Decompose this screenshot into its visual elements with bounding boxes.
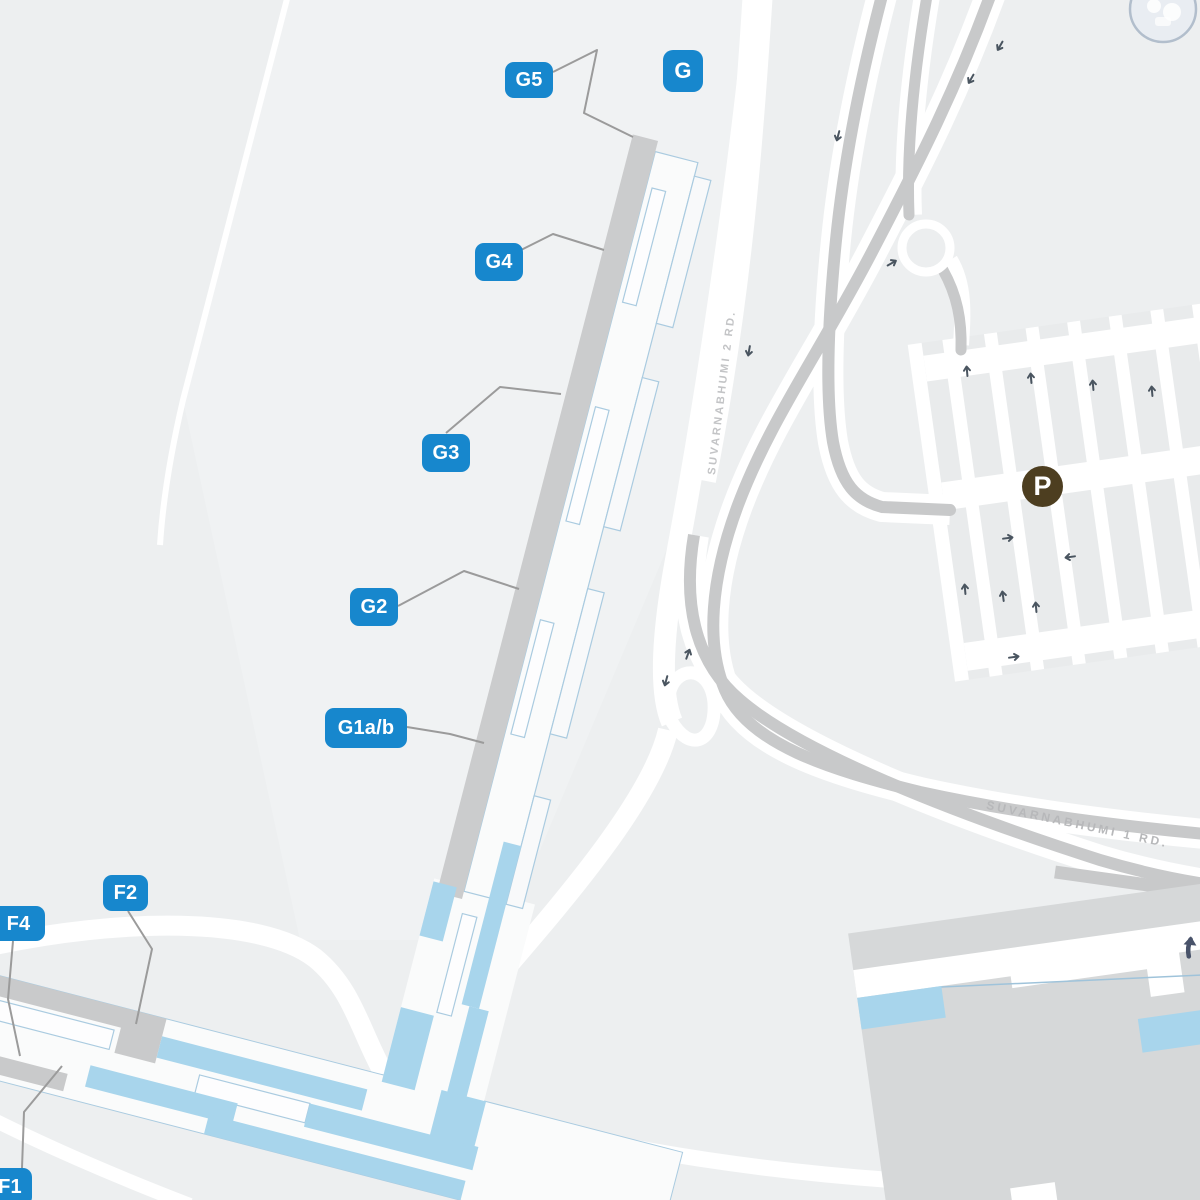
gate-badge-f1[interactable]: F1 xyxy=(0,1168,32,1200)
airport-map: SUVARNABHUMI 1 RD. SUVARNABHUMI 2 RD. G5… xyxy=(0,0,1200,1200)
roundabout xyxy=(902,224,950,272)
transport-building xyxy=(848,872,1200,1200)
map-canvas xyxy=(0,0,1200,1200)
gate-badge-f4[interactable]: F4 xyxy=(0,906,45,941)
poi-icon[interactable] xyxy=(1130,0,1196,42)
gate-badge-f2[interactable]: F2 xyxy=(103,875,148,911)
gate-badge-g1ab[interactable]: G1a/b xyxy=(325,708,407,748)
gate-badge-g5[interactable]: G5 xyxy=(505,62,553,98)
gate-badge-g4[interactable]: G4 xyxy=(475,243,523,281)
gate-badge-g2[interactable]: G2 xyxy=(350,588,398,626)
gate-badge-g3[interactable]: G3 xyxy=(422,434,470,472)
concourse-badge-g[interactable]: G xyxy=(663,50,703,92)
parking-icon[interactable]: P xyxy=(1022,466,1063,507)
